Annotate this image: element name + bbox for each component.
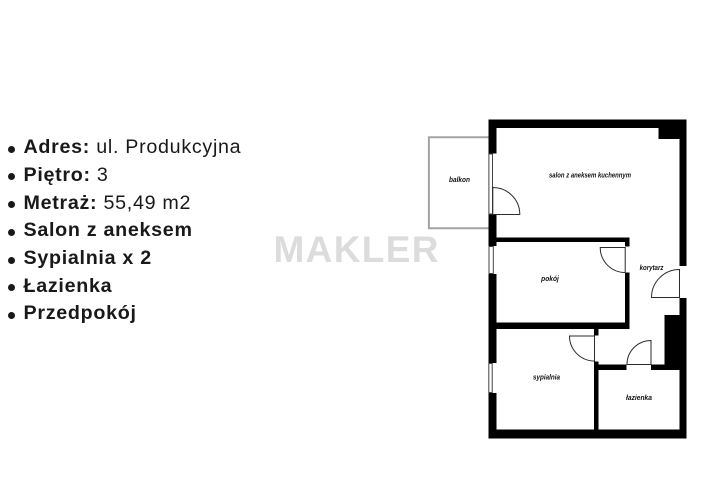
svg-text:pokój: pokój bbox=[540, 276, 560, 283]
svg-text:salon z aneksem kuchennym: salon z aneksem kuchennym bbox=[549, 172, 631, 179]
svg-text:sypialnia: sypialnia bbox=[533, 374, 560, 381]
svg-text:łazienka: łazienka bbox=[626, 395, 652, 402]
svg-text:balkon: balkon bbox=[449, 177, 470, 184]
svg-text:korytarz: korytarz bbox=[640, 265, 664, 272]
